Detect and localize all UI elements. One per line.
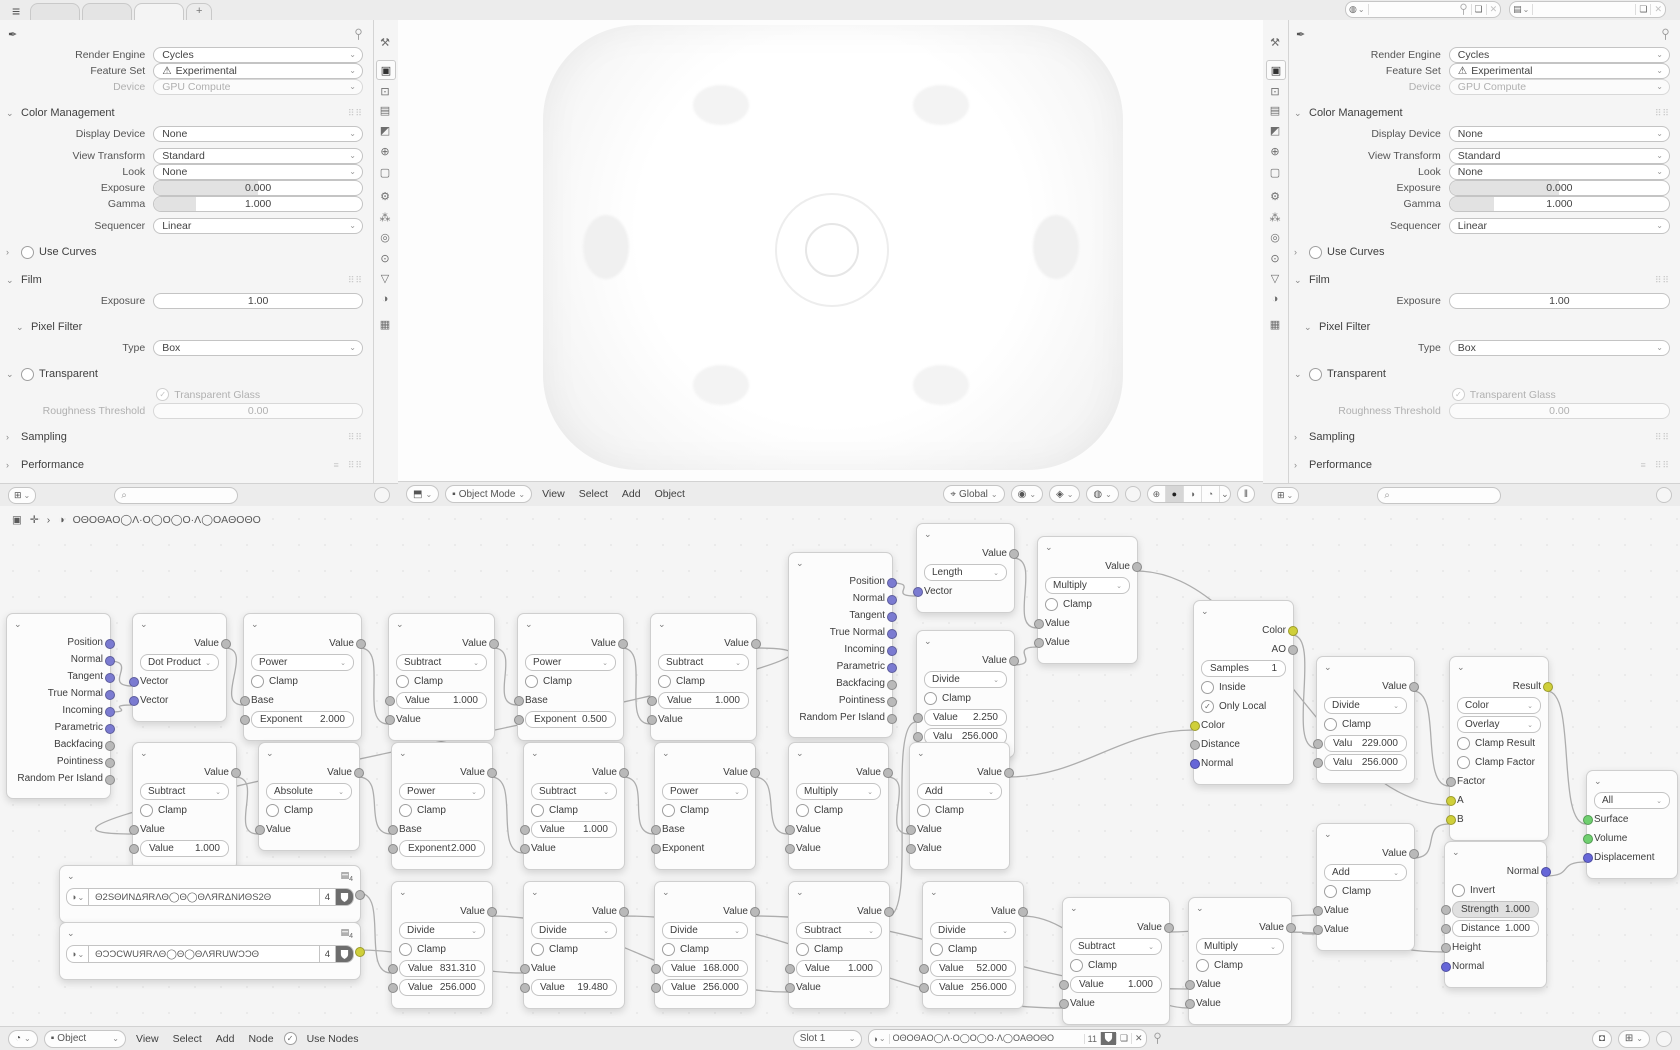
socket-out[interactable] xyxy=(487,768,497,778)
node-header[interactable]: ⌄ xyxy=(789,553,892,573)
node-header[interactable]: ⌄ xyxy=(655,882,755,902)
node-header[interactable]: ⌄ xyxy=(655,743,755,763)
search-input[interactable]: ⌕ xyxy=(1377,487,1501,504)
shader-type-select[interactable]: ▪Object⌄ xyxy=(44,1030,126,1048)
socket-in[interactable] xyxy=(1441,924,1451,934)
shading-dropdown[interactable]: ⌄ xyxy=(1220,486,1230,502)
node-pow4[interactable]: ⌄ValuePower⌄ClampBaseExponent xyxy=(654,742,756,870)
section-performance[interactable]: ›Performance≡⠿⠿ xyxy=(1294,456,1670,474)
socket-in[interactable] xyxy=(388,825,398,835)
socket-in[interactable] xyxy=(1441,943,1451,953)
properties-tab-particles-icon[interactable]: ⁂ xyxy=(1266,208,1284,226)
socket-out[interactable] xyxy=(489,639,499,649)
section-color-management[interactable]: ⌄Color Management⠿⠿ xyxy=(6,104,363,122)
properties-tab-material-icon[interactable]: ◑ xyxy=(376,290,394,308)
menu-object[interactable]: Object xyxy=(651,488,689,500)
socket-in[interactable] xyxy=(1583,815,1593,825)
number-field-exposure[interactable]: 1.00 xyxy=(153,293,363,309)
properties-tab-render-icon[interactable]: ▣ xyxy=(1266,60,1286,80)
node-header[interactable]: ⌄▤4 xyxy=(60,866,360,886)
node-checkbox[interactable] xyxy=(662,804,675,817)
render-pass-button[interactable]: ◘ xyxy=(1592,1030,1612,1048)
node-geo2[interactable]: ⌄PositionNormalTangentTrue NormalIncomin… xyxy=(788,552,893,738)
socket-in[interactable] xyxy=(1446,777,1456,787)
node-dropdown[interactable]: Absolute⌄ xyxy=(266,783,352,800)
section-performance[interactable]: ›Performance≡⠿⠿ xyxy=(6,456,363,474)
socket-out[interactable] xyxy=(231,768,241,778)
node-ao[interactable]: ⌄ColorAOSamples1Inside✓Only LocalColorDi… xyxy=(1193,600,1294,785)
socket-in[interactable] xyxy=(129,844,139,854)
select-display-device[interactable]: None⌄ xyxy=(1449,126,1670,142)
properties-tab-object-data-icon[interactable]: ▽ xyxy=(376,269,394,287)
socket-in[interactable] xyxy=(1185,999,1195,1009)
node-header[interactable]: ⌄ xyxy=(910,743,1009,763)
node-sub6[interactable]: ⌄ValueSubtract⌄ClampValue1.000Value xyxy=(1062,897,1170,1025)
node-header[interactable]: ⌄ xyxy=(524,882,624,902)
socket-out[interactable] xyxy=(1288,626,1298,636)
node-value-field[interactable]: Valu256.000 xyxy=(1324,754,1407,771)
socket-in[interactable] xyxy=(1190,740,1200,750)
socket-in[interactable] xyxy=(1190,759,1200,769)
socket-out[interactable] xyxy=(1288,645,1298,655)
socket-in[interactable] xyxy=(1190,721,1200,731)
node-dropdown[interactable]: Add⌄ xyxy=(917,783,1002,800)
properties-tab-render-icon[interactable]: ▣ xyxy=(376,60,396,80)
socket-out[interactable] xyxy=(887,680,897,690)
node-dropdown[interactable]: Power⌄ xyxy=(525,654,616,671)
node-dropdown[interactable]: Power⌄ xyxy=(251,654,354,671)
node-header[interactable]: ⌄ xyxy=(392,743,492,763)
node-checkbox[interactable] xyxy=(796,804,809,817)
workspace-tab-2[interactable] xyxy=(82,3,132,20)
pin-icon[interactable] xyxy=(1661,28,1670,41)
node-header[interactable]: ⌄ xyxy=(389,614,494,634)
socket-in[interactable] xyxy=(1313,739,1323,749)
editor-type-button[interactable]: ◔⌄ xyxy=(8,1030,38,1048)
socket-out[interactable] xyxy=(1286,923,1296,933)
section-checkbox[interactable] xyxy=(1309,368,1322,381)
node-dropdown[interactable]: Subtract⌄ xyxy=(658,654,749,671)
socket-in[interactable] xyxy=(388,844,398,854)
node-geo1[interactable]: ⌄PositionNormalTangentTrue NormalIncomin… xyxy=(6,613,111,799)
section-transparent[interactable]: ⌄Transparent xyxy=(6,365,363,383)
socket-in[interactable] xyxy=(651,844,661,854)
socket-in[interactable] xyxy=(385,696,395,706)
pause-render-button[interactable]: ‖ xyxy=(1237,485,1255,503)
pin-icon[interactable] xyxy=(354,28,363,41)
section-transparent[interactable]: ⌄Transparent xyxy=(1294,365,1670,383)
node-div2[interactable]: ⌄ValueDivide⌄ClampValu229.000Valu256.000 xyxy=(1316,656,1415,784)
node-header[interactable]: ⌄ xyxy=(518,614,623,634)
socket-in[interactable] xyxy=(1583,853,1593,863)
socket-out[interactable] xyxy=(887,646,897,656)
properties-tab-tool-icon[interactable]: ⚒ xyxy=(376,33,394,51)
node-checkbox[interactable] xyxy=(399,804,412,817)
socket-in[interactable] xyxy=(785,964,795,974)
properties-tab-physics-icon[interactable]: ◎ xyxy=(1266,228,1284,246)
socket-in[interactable] xyxy=(240,696,250,706)
socket-in[interactable] xyxy=(388,983,398,993)
properties-tab-object-icon[interactable]: ▢ xyxy=(376,163,394,181)
node-dropdown[interactable]: Power⌄ xyxy=(662,783,748,800)
socket-in[interactable] xyxy=(1446,796,1456,806)
gizmo-button[interactable]: ◈⌄ xyxy=(1049,485,1080,503)
select-look[interactable]: None⌄ xyxy=(153,164,363,180)
node-value-field[interactable]: Value1.000 xyxy=(531,821,617,838)
image-name-field[interactable]: ΘƆƆCWUЯRΛΘ◯Θ◯ΘΛЯRUWƆƆΘ xyxy=(88,945,320,963)
socket-out[interactable] xyxy=(618,639,628,649)
node-checkbox[interactable] xyxy=(658,675,671,688)
socket-out[interactable] xyxy=(355,947,365,957)
socket-in[interactable] xyxy=(1059,999,1069,1009)
select-display-device[interactable]: None⌄ xyxy=(153,126,363,142)
select-view-transform[interactable]: Standard⌄ xyxy=(1449,148,1670,164)
properties-tab-particles-icon[interactable]: ⁂ xyxy=(376,208,394,226)
socket-out[interactable] xyxy=(105,724,115,734)
node-header[interactable]: ⌄ xyxy=(651,614,756,634)
node-header[interactable]: ⌄ xyxy=(789,743,888,763)
node-header[interactable]: ⌄ xyxy=(133,743,236,763)
node-checkbox[interactable] xyxy=(1324,885,1337,898)
socket-out[interactable] xyxy=(105,656,115,666)
socket-in[interactable] xyxy=(913,732,923,742)
node-checkbox[interactable] xyxy=(1196,959,1209,972)
select-sequencer[interactable]: Linear⌄ xyxy=(153,218,363,234)
node-dropdown[interactable]: Length⌄ xyxy=(924,564,1007,581)
shading-rendered-button[interactable]: ◔ xyxy=(1202,486,1220,502)
material-name-field[interactable]: OΘOΘAO◯Λ·O◯O◯O·Λ◯OAΘOΘO xyxy=(890,1030,1084,1047)
node-dropdown[interactable]: Color⌄ xyxy=(1457,697,1541,714)
socket-in[interactable] xyxy=(647,696,657,706)
node-sub2[interactable]: ⌄ValueSubtract⌄ClampValue1.000Value xyxy=(650,613,757,741)
node-dropdown[interactable]: Dot Product⌄ xyxy=(140,654,219,671)
node-mul1[interactable]: ⌄ValueMultiply⌄ClampValueValue xyxy=(1037,536,1138,664)
properties-tab-scene-icon[interactable]: ◩ xyxy=(376,121,394,139)
editor-type-button[interactable]: ⊞⌄ xyxy=(8,487,36,504)
node-value-field[interactable]: Strength1.000 xyxy=(1452,901,1539,918)
node-dropdown[interactable]: Subtract⌄ xyxy=(140,783,229,800)
select-device[interactable]: GPU Compute⌄ xyxy=(153,79,363,95)
socket-out[interactable] xyxy=(750,768,760,778)
socket-out[interactable] xyxy=(887,629,897,639)
node-value-field[interactable]: Value256.000 xyxy=(662,979,748,996)
socket-in[interactable] xyxy=(1441,905,1451,915)
editor-type-button[interactable]: ⊞⌄ xyxy=(1271,487,1299,504)
socket-out[interactable] xyxy=(751,639,761,649)
node-tex2-texture-group[interactable]: ⌄▤4 ◑⌄ ΘƆƆCWUЯRΛΘ◯Θ◯ΘΛЯRUWƆƆΘ 4 xyxy=(59,922,361,980)
users-count-button[interactable]: 4 xyxy=(320,945,336,963)
socket-out[interactable] xyxy=(105,673,115,683)
pin-icon[interactable] xyxy=(1459,3,1468,16)
node-header[interactable]: ⌄ xyxy=(1317,824,1414,844)
node-sub3[interactable]: ⌄ValueSubtract⌄ClampValueValue1.000 xyxy=(132,742,237,870)
node-value-field[interactable]: Value2.250 xyxy=(924,709,1007,726)
fake-user-shield-button[interactable] xyxy=(336,945,354,963)
socket-out[interactable] xyxy=(1018,907,1028,917)
node-header[interactable]: ⌄ xyxy=(1445,842,1546,862)
node-sub1[interactable]: ⌄ValueSubtract⌄ClampValue1.000Value xyxy=(388,613,495,741)
scene-name-field[interactable] xyxy=(1369,2,1471,17)
socket-in[interactable] xyxy=(785,825,795,835)
node-header[interactable]: ⌄ xyxy=(923,882,1023,902)
properties-tab-constraints-icon[interactable]: ⊙ xyxy=(376,249,394,267)
socket-in[interactable] xyxy=(906,844,916,854)
socket-in[interactable] xyxy=(1446,815,1456,825)
image-browse-button[interactable]: ◑⌄ xyxy=(66,945,88,963)
socket-in[interactable] xyxy=(919,983,929,993)
properties-tab-modifiers-icon[interactable]: ⚙ xyxy=(376,187,394,205)
section-pixel-filter[interactable]: ⌄Pixel Filter xyxy=(16,318,363,336)
node-checkbox[interactable] xyxy=(796,943,809,956)
node-pow3[interactable]: ⌄ValuePower⌄ClampBaseExponent2.000 xyxy=(391,742,493,870)
new-viewlayer-button[interactable]: ❏ xyxy=(1635,4,1650,15)
node-div3[interactable]: ⌄ValueDivide⌄ClampValue831.310Value256.0… xyxy=(391,881,493,1009)
socket-out[interactable] xyxy=(1009,549,1019,559)
options-button[interactable] xyxy=(1656,487,1672,503)
node-value-field[interactable]: Value256.000 xyxy=(399,979,485,996)
socket-out[interactable] xyxy=(887,612,897,622)
select-view-transform[interactable]: Standard⌄ xyxy=(153,148,363,164)
node-dropdown[interactable]: Add⌄ xyxy=(1324,864,1407,881)
select-device[interactable]: GPU Compute⌄ xyxy=(1449,79,1670,95)
socket-out[interactable] xyxy=(1541,867,1551,877)
material-slot-select[interactable]: Slot 1⌄ xyxy=(793,1030,863,1048)
viewport-3d[interactable]: ⬒⌄ ▪Object Mode⌄ View Select Add Object … xyxy=(398,20,1264,506)
node-mul2[interactable]: ⌄ValueMultiply⌄ClampValueValue xyxy=(788,742,889,870)
node-len[interactable]: ⌄ValueLength⌄Vector xyxy=(916,523,1015,613)
checkbox[interactable]: ✓ xyxy=(1452,388,1465,401)
properties-tab-modifiers-icon[interactable]: ⚙ xyxy=(1266,187,1284,205)
section-use-curves[interactable]: ›Use Curves xyxy=(6,243,363,261)
number-field-exposure[interactable]: 1.00 xyxy=(1449,293,1670,309)
properties-tab-view-layer-icon[interactable]: ▤ xyxy=(376,101,394,119)
section-checkbox[interactable] xyxy=(1309,246,1322,259)
slider-exposure[interactable]: 0.000 xyxy=(153,180,363,196)
node-dropdown[interactable]: Divide⌄ xyxy=(399,922,485,939)
viewlayer-name-field[interactable] xyxy=(1533,2,1635,17)
socket-in[interactable] xyxy=(129,677,139,687)
socket-out[interactable] xyxy=(1132,562,1142,572)
node-div4[interactable]: ⌄ValueDivide⌄ClampValueValue19.480 xyxy=(523,881,625,1009)
material-users-count[interactable]: 11 xyxy=(1084,1034,1100,1044)
properties-tab-constraints-icon[interactable]: ⊙ xyxy=(1266,249,1284,267)
slider-gamma[interactable]: 1.000 xyxy=(153,196,363,212)
node-value-field[interactable]: Distance1.000 xyxy=(1452,920,1539,937)
socket-in[interactable] xyxy=(520,825,530,835)
node-value-field[interactable]: Value256.000 xyxy=(930,979,1016,996)
socket-in[interactable] xyxy=(385,715,395,725)
node-add2[interactable]: ⌄ValueAdd⌄ClampValueValue xyxy=(1316,823,1415,951)
section-sampling[interactable]: ›Sampling⠿⠿ xyxy=(1294,428,1670,446)
socket-out[interactable] xyxy=(1409,682,1419,692)
app-menu-icon[interactable]: ≡ xyxy=(12,3,20,19)
properties-tab-world-icon[interactable]: ⊕ xyxy=(1266,142,1284,160)
menu-add[interactable]: Add xyxy=(618,488,645,500)
node-value-field[interactable]: Value831.310 xyxy=(399,960,485,977)
socket-out[interactable] xyxy=(105,707,115,717)
section-checkbox[interactable] xyxy=(21,368,34,381)
node-dropdown[interactable]: Divide⌄ xyxy=(924,671,1007,688)
node-header[interactable]: ⌄ xyxy=(1317,657,1414,677)
node-checkbox[interactable] xyxy=(1324,718,1337,731)
node-header[interactable]: ⌄ xyxy=(1063,898,1169,918)
socket-in[interactable] xyxy=(906,825,916,835)
node-dropdown[interactable]: Overlay⌄ xyxy=(1457,716,1541,733)
socket-in[interactable] xyxy=(520,983,530,993)
socket-in[interactable] xyxy=(1034,619,1044,629)
node-dropdown[interactable]: Subtract⌄ xyxy=(531,783,617,800)
node-add1[interactable]: ⌄ValueAdd⌄ClampValueValue xyxy=(909,742,1010,870)
node-checkbox[interactable] xyxy=(917,804,930,817)
socket-out[interactable] xyxy=(883,768,893,778)
socket-in[interactable] xyxy=(919,964,929,974)
properties-tab-texture-icon[interactable]: ▦ xyxy=(376,315,394,333)
socket-out[interactable] xyxy=(1009,656,1019,666)
socket-in[interactable] xyxy=(1313,906,1323,916)
node-checkbox[interactable] xyxy=(525,675,538,688)
node-checkbox[interactable] xyxy=(662,943,675,956)
socket-out[interactable] xyxy=(887,578,897,588)
socket-in[interactable] xyxy=(520,964,530,974)
select-render-engine[interactable]: Cycles⌄ xyxy=(153,47,363,63)
socket-out[interactable] xyxy=(105,775,115,785)
select-type[interactable]: Box⌄ xyxy=(1449,340,1670,356)
node-dropdown[interactable]: Power⌄ xyxy=(399,783,485,800)
socket-in[interactable] xyxy=(1313,758,1323,768)
socket-in[interactable] xyxy=(1185,980,1195,990)
node-value-field[interactable]: Exponent2.000 xyxy=(251,711,354,728)
socket-out[interactable] xyxy=(221,639,231,649)
node-dropdown[interactable]: Divide⌄ xyxy=(1324,697,1407,714)
workspace-tab-3[interactable] xyxy=(134,3,184,20)
node-value-field[interactable]: Value19.480 xyxy=(531,979,617,996)
node-value-field[interactable]: Valu229.000 xyxy=(1324,735,1407,752)
node-header[interactable]: ⌄ xyxy=(392,882,492,902)
section-film[interactable]: ⌄Film⠿⠿ xyxy=(1294,271,1670,289)
copy-material-button[interactable]: ❏ xyxy=(1116,1033,1131,1044)
socket-in[interactable] xyxy=(1034,638,1044,648)
node-header[interactable]: ⌄ xyxy=(1450,657,1548,677)
socket-out[interactable] xyxy=(1164,923,1174,933)
socket-out[interactable] xyxy=(105,741,115,751)
socket-out[interactable] xyxy=(356,639,366,649)
node-div5[interactable]: ⌄ValueDivide⌄ClampValue168.000Value256.0… xyxy=(654,881,756,1009)
node-header[interactable]: ⌄ xyxy=(1587,771,1677,791)
socket-out[interactable] xyxy=(887,595,897,605)
node-dropdown[interactable]: Divide⌄ xyxy=(930,922,1016,939)
socket-in[interactable] xyxy=(388,964,398,974)
node-dropdown[interactable]: Multiply⌄ xyxy=(796,783,881,800)
node-checkbox[interactable] xyxy=(531,804,544,817)
snapping-button[interactable]: ◉⌄ xyxy=(1011,485,1043,503)
node-checkbox[interactable] xyxy=(930,943,943,956)
select-sequencer[interactable]: Linear⌄ xyxy=(1449,218,1670,234)
node-sub5[interactable]: ⌄ValueSubtract⌄ClampValue1.000Value xyxy=(788,881,890,1009)
socket-in[interactable] xyxy=(129,696,139,706)
fake-user-shield-button[interactable] xyxy=(336,888,354,906)
node-header[interactable]: ⌄ xyxy=(7,614,110,634)
shading-solid-button[interactable]: ● xyxy=(1166,486,1184,502)
node-dropdown[interactable]: Multiply⌄ xyxy=(1045,577,1130,594)
shading-material-button[interactable]: ◑ xyxy=(1184,486,1202,502)
menu-add[interactable]: Add xyxy=(212,1033,239,1045)
search-input[interactable]: ⌕ xyxy=(114,487,238,504)
delete-scene-button[interactable]: ✕ xyxy=(1486,4,1501,15)
number-field-roughness-threshold[interactable]: 0.00 xyxy=(153,403,363,419)
socket-in[interactable] xyxy=(255,825,265,835)
grid-snap-button[interactable]: ⊞⌄ xyxy=(1618,1030,1650,1048)
socket-out[interactable] xyxy=(355,890,365,900)
node-pow2[interactable]: ⌄ValuePower⌄ClampBaseExponent0.500 xyxy=(517,613,624,741)
section-checkbox[interactable] xyxy=(21,246,34,259)
section-color-management[interactable]: ⌄Color Management⠿⠿ xyxy=(1294,104,1670,122)
menu-select[interactable]: Select xyxy=(575,488,612,500)
node-value-field[interactable]: Value1.000 xyxy=(140,840,229,857)
socket-in[interactable] xyxy=(651,825,661,835)
node-header[interactable]: ⌄▤4 xyxy=(60,923,360,943)
socket-in[interactable] xyxy=(514,696,524,706)
socket-out[interactable] xyxy=(487,907,497,917)
properties-tab-texture-icon[interactable]: ▦ xyxy=(1266,315,1284,333)
socket-in[interactable] xyxy=(1441,962,1451,972)
unlink-material-button[interactable]: ✕ xyxy=(1131,1033,1146,1044)
properties-tab-output-icon[interactable]: ⊡ xyxy=(376,82,394,100)
node-header[interactable]: ⌄ xyxy=(1194,601,1293,621)
node-checkbox[interactable] xyxy=(399,943,412,956)
options-button[interactable] xyxy=(374,487,390,503)
socket-in[interactable] xyxy=(129,825,139,835)
pin-icon[interactable] xyxy=(1153,1032,1162,1045)
socket-in[interactable] xyxy=(1313,925,1323,935)
section-sampling[interactable]: ›Sampling⠿⠿ xyxy=(6,428,363,446)
select-render-engine[interactable]: Cycles⌄ xyxy=(1449,47,1670,63)
node-mul3[interactable]: ⌄ValueMultiply⌄ClampValueValue xyxy=(1188,897,1292,1025)
node-header[interactable]: ⌄ xyxy=(244,614,361,634)
socket-out[interactable] xyxy=(1409,849,1419,859)
node-checkbox[interactable] xyxy=(1045,598,1058,611)
properties-tab-world-icon[interactable]: ⊕ xyxy=(376,142,394,160)
node-checkbox[interactable] xyxy=(251,675,264,688)
node-sub4[interactable]: ⌄ValueSubtract⌄ClampValue1.000Value xyxy=(523,742,625,870)
node-checkbox[interactable] xyxy=(531,943,544,956)
node-checkbox[interactable] xyxy=(1457,756,1470,769)
node-checkbox[interactable] xyxy=(1070,959,1083,972)
mode-select[interactable]: ▪Object Mode⌄ xyxy=(445,485,532,503)
socket-out[interactable] xyxy=(619,768,629,778)
node-pow1[interactable]: ⌄ValuePower⌄ClampBaseExponent2.000 xyxy=(243,613,362,741)
xray-toggle[interactable] xyxy=(1125,486,1141,502)
socket-out[interactable] xyxy=(887,663,897,673)
node-header[interactable]: ⌄ xyxy=(524,743,624,763)
delete-viewlayer-button[interactable]: ✕ xyxy=(1650,4,1665,15)
socket-out[interactable] xyxy=(105,758,115,768)
node-checkbox[interactable] xyxy=(1201,681,1214,694)
properties-tab-material-icon[interactable]: ◑ xyxy=(1266,290,1284,308)
menu-view[interactable]: View xyxy=(132,1033,163,1045)
select-feature-set[interactable]: ⚠Experimental⌄ xyxy=(153,63,363,79)
node-checkbox[interactable]: ✓ xyxy=(1201,700,1214,713)
node-dropdown[interactable]: All⌄ xyxy=(1594,792,1670,809)
node-canvas[interactable]: ⌄PositionNormalTangentTrue NormalIncomin… xyxy=(0,506,1680,1028)
node-value-field[interactable]: Samples1 xyxy=(1201,660,1286,677)
node-header[interactable]: ⌄ xyxy=(917,631,1014,651)
socket-out[interactable] xyxy=(1004,768,1014,778)
node-tex1-texture-group[interactable]: ⌄▤4 ◑⌄ Θ2SΘИNΔЯRΛΘ◯Θ◯ΘΛЯRΔNИΘS2Θ 4 xyxy=(59,865,361,923)
node-div6[interactable]: ⌄ValueDivide⌄ClampValue52.000Value256.00… xyxy=(922,881,1024,1009)
node-dropdown[interactable]: Subtract⌄ xyxy=(796,922,882,939)
socket-out[interactable] xyxy=(887,714,897,724)
node-checkbox[interactable] xyxy=(1457,737,1470,750)
